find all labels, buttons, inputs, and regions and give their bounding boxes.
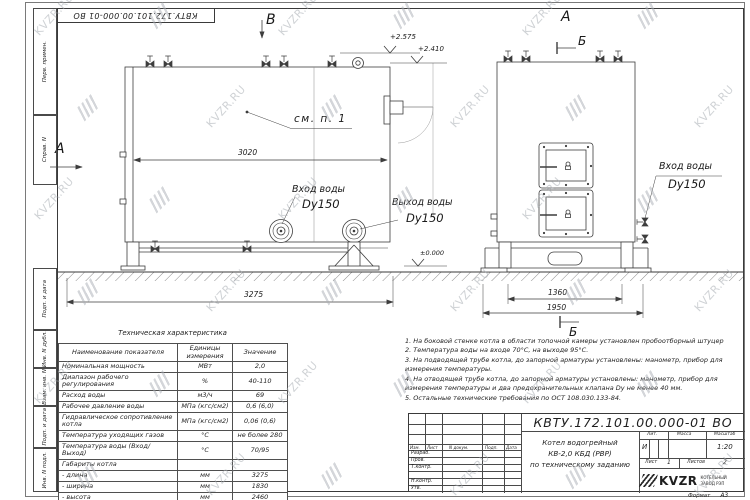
tb-scale-value: 1:20 [717,443,733,451]
note-item: 5. Остальные технические требования по О… [405,394,744,403]
note-item: 2. Температура воды на входе 70°С, на вы… [405,346,744,355]
tb-row-tkontr: Т.контр. [411,465,432,470]
technical-notes: 1. На боковой стенке котла в области топ… [405,337,744,403]
frame-label-text: Взам. инв. N [42,369,48,405]
corner-stamp-number: КВТУ.172.101.00.000-01 ВО [73,11,197,20]
spec-header-row: Наименование показателя Единицы измерени… [59,344,288,362]
tb-lit-value: И [642,443,647,451]
spec-row: - длинамм3275 [59,470,288,481]
spec-row: Расход водым3/ч69 [59,390,288,401]
spec-row: Температура уходящих газов°Сне более 280 [59,430,288,441]
frame-label-text: Перв. примен. [42,41,48,82]
frame-label-podp-data-2: Подп. и дата [33,406,57,448]
tb-row-nkontr: Н.контр. [411,479,432,484]
inlet-label-front: Вход воды [292,184,345,195]
spec-row: Рабочее давление водыМПа (кгс/см2)0,6 (6… [59,401,288,412]
dim-1950: 1950 [547,303,566,312]
note-item: 3. На подводящей трубе котла, до запорно… [405,356,744,375]
manufacturer-logo: KVZR КОТЕЛЬНЫЙ ЗАВОД РЭП [641,470,743,491]
frame-label-text: Инв. N подл. [42,452,48,488]
dim-1360: 1360 [548,288,567,297]
kvzr-logo-text: KVZR [659,474,698,488]
inlet-label-side: Вход воды [659,161,712,172]
title-block-doc-number: КВТУ.172.101.00.000-01 ВО [521,414,745,431]
title-line-1: Котел водогрейный [542,437,617,448]
note-item: 4. На отводящей трубе котла, до запорной… [405,375,744,394]
tb-row-utv: Утв. [411,486,421,491]
title-line-3: по техническому заданию [530,459,630,470]
spec-table: Наименование показателя Единицы измерени… [58,343,288,500]
spec-row: Температура воды (Вход/Выход)°С70/95 [59,441,288,459]
callout-see-note-1: см. п. 1 [294,113,347,125]
frame-label-vzam-inv: Взам. инв. N [33,368,57,406]
format-note: ФорматА3 [688,492,728,499]
elevation-label-mid: +2.410 [418,45,444,53]
frame-label-text: Подп. и дата [42,280,48,317]
title-line-2: КВ-2,0 КБД (РВР) [548,448,611,459]
spec-row: Номинальная мощностьМВт2,0 [59,362,288,373]
frame-label-text: Подп. и дата [42,408,48,445]
inlet-dn-front: Dy150 [302,197,340,211]
frame-label-sprav-n: Справ. N [33,115,57,185]
tb-row-razrab: Разраб. [411,451,430,456]
view-letter-b: В [266,12,276,28]
outlet-dn-front: Dy150 [406,211,444,225]
company-name-line2: ЗАВОД РЭП [701,481,727,486]
tb-col-ndoc: N докум. [449,445,468,450]
view-letter-a-side: А [561,9,571,25]
tb-row-prov: Пров. [411,458,425,463]
spec-row: Диапазон рабочего регулирования%40-110 [59,373,288,391]
tb-sheets-label: Листов [687,460,705,465]
tb-col-list: Лист [427,445,438,450]
kvzr-logo-icon [639,474,658,487]
format-label: Формат [688,493,710,499]
spec-header-units: Единицы измерения [178,344,233,362]
corner-stamp: КВТУ.172.101.00.000-01 ВО [57,8,215,23]
frame-label-text: Инв. N дубл. [42,331,48,367]
spec-row: Габариты котла [59,459,288,470]
tb-mass-label: Масса [677,432,691,437]
frame-label-inv-dubl: Инв. N дубл. [33,330,57,368]
spec-row: - высотамм2460 [59,492,288,500]
drawing-sheet: КВТУ.172.101.00.000-01 ВО Перв. примен. … [0,0,750,500]
tb-sheet-value: 1 [667,459,671,466]
spec-row: - ширинамм1830 [59,481,288,492]
spec-table-title: Техническая характеристика [58,329,287,337]
tb-sheets-value: 2 [723,459,727,466]
spec-row: Гидравлическое сопротивление котлаМПа (к… [59,412,288,430]
elevation-label-top: +2.575 [390,33,416,41]
section-letter-b-top: Б [578,34,586,48]
frame-label-podp-data-1: Подп. и дата [33,268,57,330]
spec-header-value: Значение [233,344,288,362]
tb-sheet-label: Лист [645,460,657,465]
frame-label-inv-podl: Инв. N подл. [33,448,57,492]
frame-label-perv-primen: Перв. примен. [33,8,57,115]
frame-label-text: Справ. N [42,137,48,162]
title-block: Изм. Лист N докум. Подп. Дата Разраб. Пр… [408,413,744,492]
note-item: 1. На боковой стенке котла в области топ… [405,337,744,346]
dim-3275: 3275 [244,290,263,299]
title-block-title: Котел водогрейный КВ-2,0 КБД (РВР) по те… [521,433,639,493]
dim-3020: 3020 [238,148,257,157]
tb-scale-label: Масштаб [714,432,735,437]
tb-col-izm: Изм. [410,445,420,450]
elevation-label-zero: ±0.000 [420,249,444,257]
tb-lit-label: Лит. [647,432,657,437]
tb-col-data: Дата [506,445,517,450]
spec-header-name: Наименование показателя [59,344,178,362]
format-value: А3 [720,492,728,499]
outlet-label-front: Выход воды [392,197,453,208]
inlet-dn-side: Dy150 [668,177,706,191]
tb-col-podp: Подп. [485,445,498,450]
